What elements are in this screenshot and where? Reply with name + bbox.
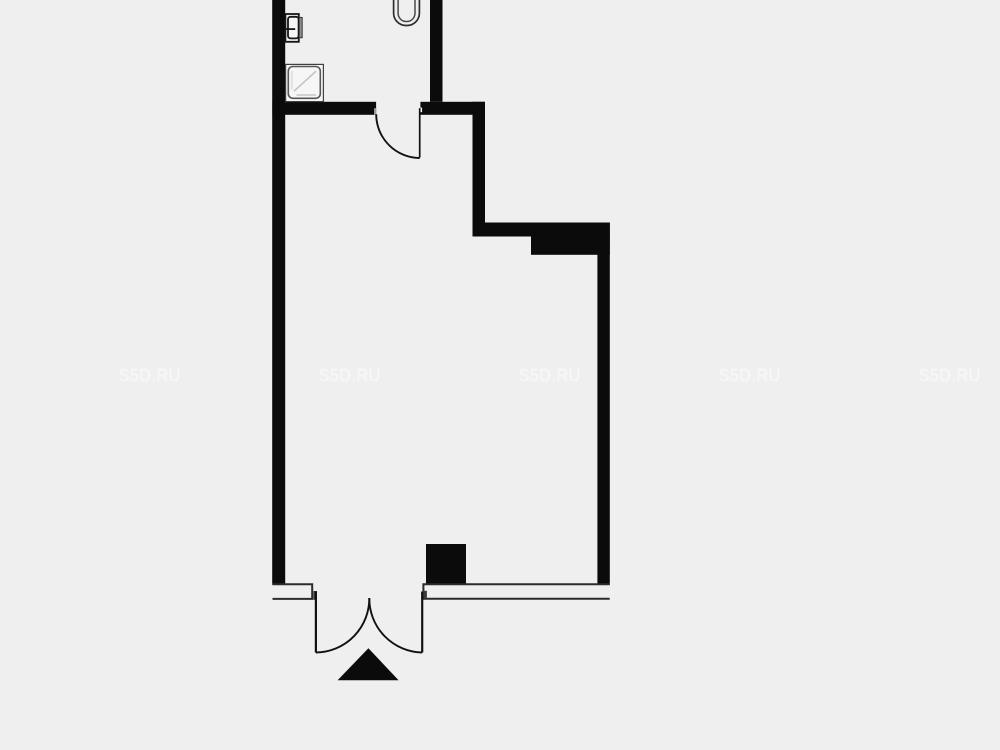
- svg-text:S5D.RU: S5D.RU: [719, 365, 781, 386]
- svg-text:S5D.RU: S5D.RU: [119, 365, 181, 386]
- svg-text:S5D.RU: S5D.RU: [919, 365, 981, 386]
